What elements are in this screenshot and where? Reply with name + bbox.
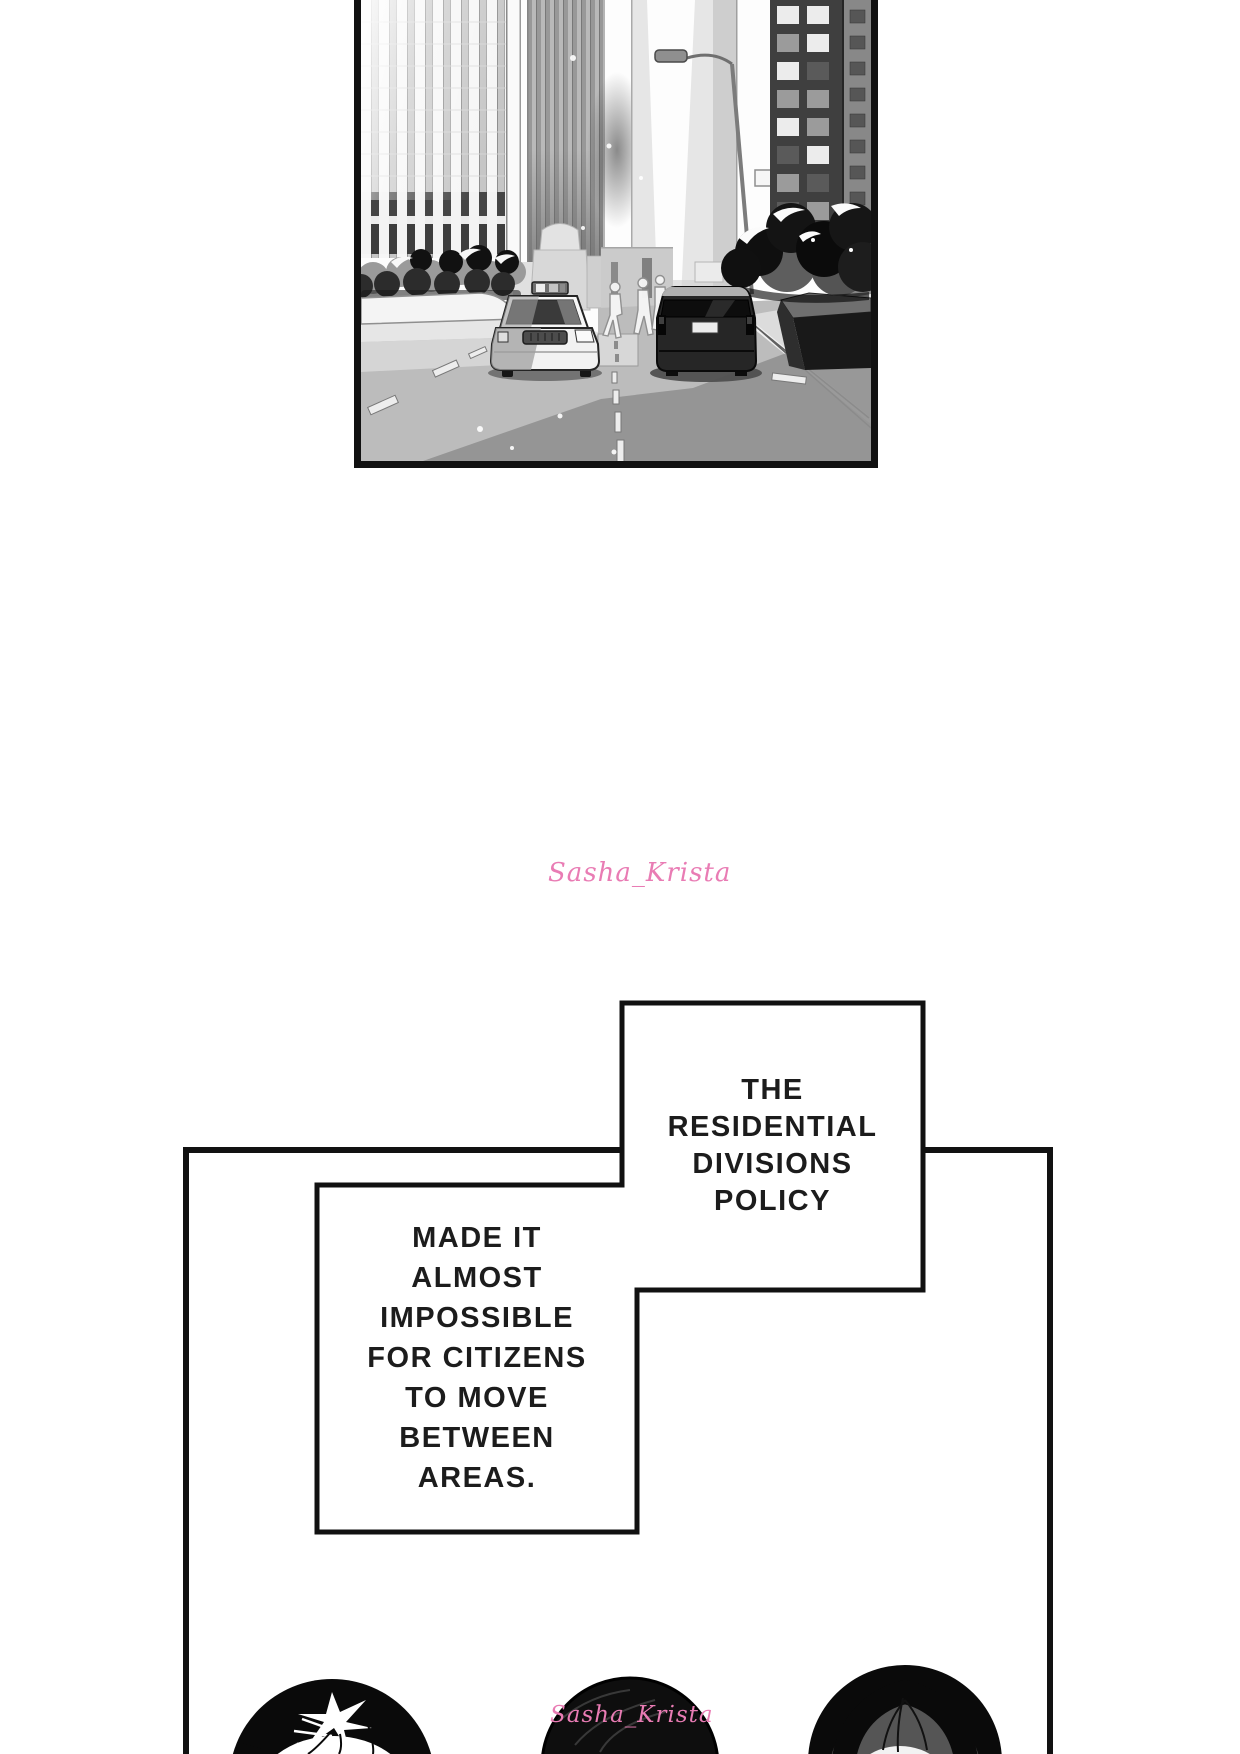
- caption-line: AREAS.: [418, 1458, 537, 1498]
- artist-watermark-bottom: Sasha_Krista: [550, 1702, 685, 1728]
- head-silhouette-right: [808, 1665, 1002, 1754]
- comic-page: Sasha_Krista: [0, 0, 1240, 1754]
- caption-line: MADE IT: [412, 1218, 542, 1258]
- caption-line: IMPOSSIBLE: [380, 1298, 574, 1338]
- dark-suv: [650, 287, 762, 382]
- artist-watermark-top: Sasha_Krista: [548, 858, 693, 888]
- caption-line: BETWEEN: [399, 1418, 555, 1458]
- head-silhouette-left: [229, 1679, 435, 1754]
- caption-line: THE: [741, 1072, 804, 1109]
- caption-line: RESIDENTIAL: [668, 1109, 878, 1146]
- caption-line: TO MOVE: [405, 1378, 549, 1418]
- caption-box-2: MADE IT ALMOST IMPOSSIBLE FOR CITIZENS T…: [325, 1192, 629, 1524]
- caption-box-1: THE RESIDENTIAL DIVISIONS POLICY: [630, 1010, 915, 1282]
- planter-hedge: [777, 293, 871, 370]
- city-panel: [354, 0, 878, 468]
- caption-line: FOR CITIZENS: [367, 1338, 586, 1378]
- caption-line: DIVISIONS: [692, 1146, 852, 1183]
- striped-highrise: [361, 0, 521, 290]
- license-plate: [692, 322, 718, 333]
- city-scene-illustration: [361, 0, 871, 461]
- planter-wall: [361, 293, 515, 324]
- caption-line: ALMOST: [411, 1258, 542, 1298]
- caption-line: POLICY: [714, 1183, 831, 1220]
